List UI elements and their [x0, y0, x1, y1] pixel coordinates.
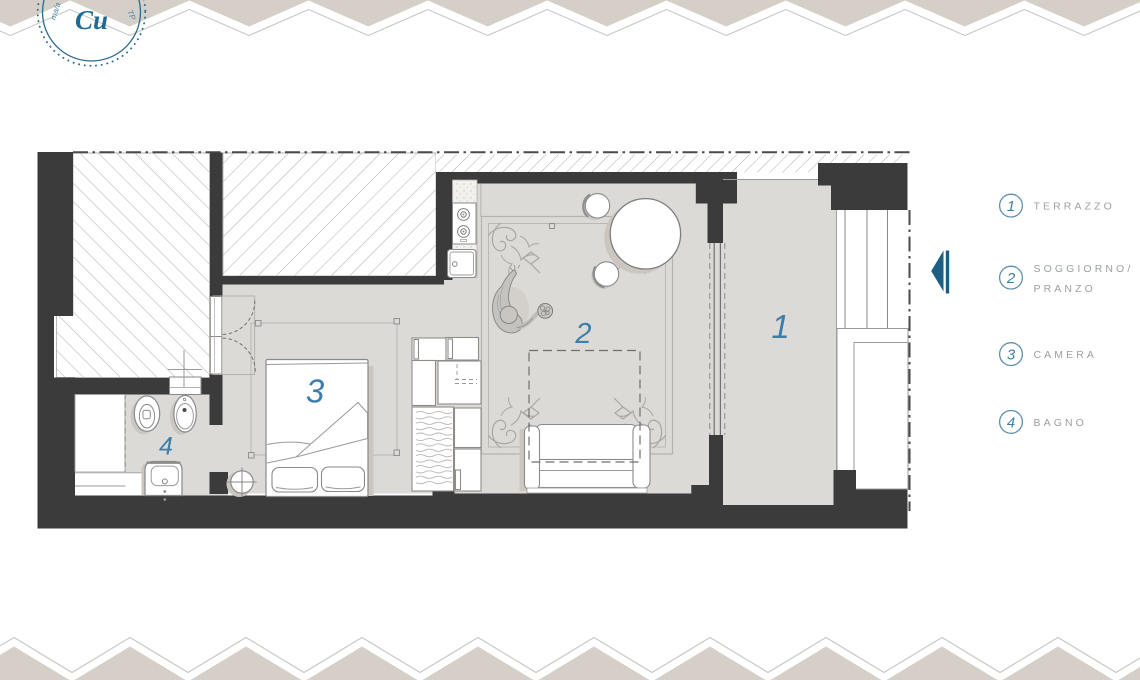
svg-text:3: 3 [306, 373, 325, 410]
svg-text:TERRAZZO: TERRAZZO [1034, 201, 1115, 213]
svg-text:2: 2 [574, 318, 591, 350]
svg-text:3: 3 [1007, 347, 1016, 364]
svg-text:SOGGIORNO/: SOGGIORNO/ [1034, 263, 1134, 275]
svg-text:BAGNO: BAGNO [1034, 417, 1087, 429]
svg-text:CAMERA: CAMERA [1034, 349, 1098, 361]
svg-text:1: 1 [1007, 198, 1015, 215]
svg-text:4: 4 [1007, 414, 1015, 431]
svg-text:1: 1 [771, 308, 789, 345]
svg-text:PRANZO: PRANZO [1034, 283, 1096, 295]
svg-text:Cu: Cu [75, 5, 108, 35]
svg-text:4: 4 [159, 433, 173, 461]
svg-text:2: 2 [1006, 270, 1016, 287]
